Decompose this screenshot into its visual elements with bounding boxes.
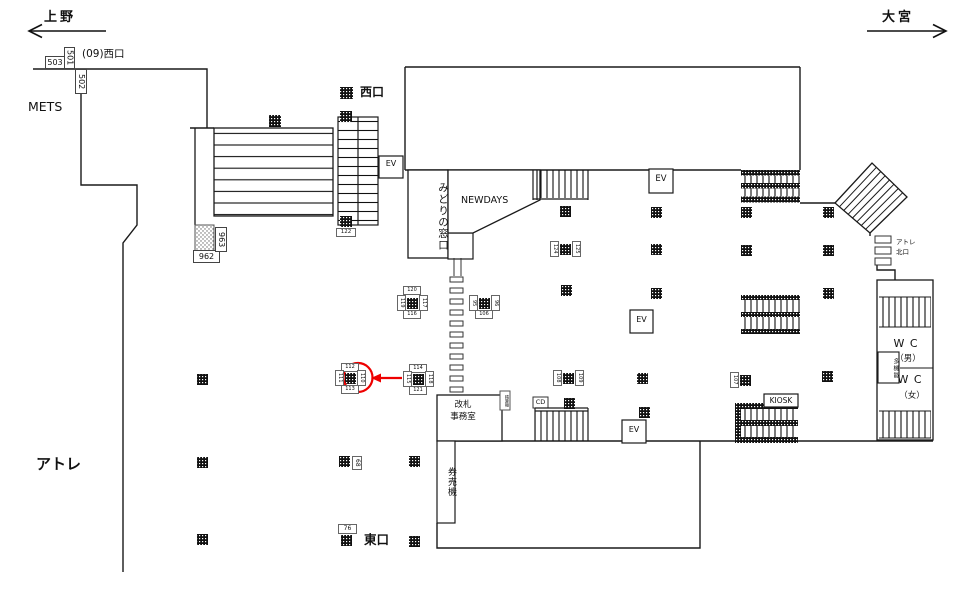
- fare-adjust-label: 精算機: [501, 392, 509, 409]
- bottom-center-stairs: [535, 408, 588, 441]
- pillar: [409, 456, 420, 467]
- west-exit-label: 西口: [360, 86, 384, 99]
- ad-label-c6-right: 109: [575, 370, 584, 386]
- ticket-machines-label: 券売機: [437, 456, 455, 508]
- escalator-middle: [741, 295, 800, 334]
- multi-function-label: 多機能: [879, 354, 898, 382]
- pillar: [341, 535, 352, 546]
- kiosk-stand: [735, 403, 798, 443]
- cd-label: CD: [533, 399, 548, 406]
- elevator-north-label: EV: [649, 175, 673, 184]
- pillar: [822, 371, 833, 382]
- ad-label-963: 963: [215, 227, 227, 252]
- midori-window-label: みどりの窓口: [408, 174, 448, 258]
- pillar: [197, 374, 208, 385]
- ad-label-503: 503: [45, 56, 65, 69]
- pillar: [639, 407, 650, 418]
- diagonal-stairs: [835, 163, 907, 233]
- ad-label-c4-left: 111: [335, 370, 344, 386]
- pillar: [651, 244, 662, 255]
- ad-label-c1-bottom: 116: [403, 310, 421, 319]
- ad-label-68: 68: [352, 456, 362, 470]
- ad-label-c4-right: 110: [357, 370, 366, 386]
- pillar: [340, 216, 352, 227]
- station-floor-map: 上野 大宮 (09)西口 503 501 502 METS 西口 962 963…: [0, 0, 960, 605]
- ad-label-c6-left: 108: [553, 370, 562, 386]
- ad-label-c5-right: 118: [425, 371, 434, 387]
- map-geometry: [0, 0, 960, 605]
- ad-label-c1-right: 117: [419, 295, 428, 311]
- ad-label-502: 502: [75, 69, 87, 94]
- ticket-gates: [450, 258, 463, 392]
- pillar: [479, 298, 490, 309]
- corner-room-box: [448, 233, 473, 259]
- elevator-south-label: EV: [622, 426, 646, 435]
- pillar: [409, 536, 420, 547]
- pillar: [560, 206, 571, 217]
- ad-label-c7-left: 107: [730, 372, 739, 388]
- direction-label-omiya: 大宮: [882, 11, 914, 25]
- direction-arrow-omiya: [867, 25, 946, 38]
- pillar: [651, 207, 662, 218]
- pillar: [345, 373, 356, 384]
- west-exit-stairs: [338, 111, 378, 227]
- pillar: [741, 207, 752, 218]
- pillar: [413, 374, 424, 385]
- elevator-west-label: EV: [379, 160, 403, 169]
- elevator-center-label: EV: [630, 316, 653, 325]
- pillar: [740, 375, 751, 386]
- center-top-stairs: [533, 170, 588, 200]
- ad-label-c2-bottom: 106: [475, 310, 493, 319]
- escalator-upper: [741, 170, 800, 203]
- pillar: [564, 398, 575, 409]
- ad-label-c1-top: 120: [403, 286, 421, 295]
- ad-label-c3-right: 125: [572, 241, 581, 257]
- pillar: [563, 373, 574, 384]
- newdays-label: NEWDAYS: [461, 196, 508, 206]
- pillar: [823, 288, 834, 299]
- ad-label-122: 122: [336, 228, 356, 237]
- wc-women-label: （女）: [890, 392, 934, 401]
- atre-north-gates: [875, 236, 891, 265]
- atre-label: アトレ: [36, 456, 81, 473]
- pillar: [197, 457, 208, 468]
- ad-label-c5-left: 115: [403, 371, 412, 387]
- pillar: [340, 87, 353, 99]
- ad-label-c1-left: 119: [397, 295, 406, 311]
- ad-label-501: 501: [64, 47, 75, 69]
- pillar: [651, 288, 662, 299]
- wc-men-title: W C: [884, 338, 928, 350]
- atre-north-label-1: アトレ: [896, 239, 916, 246]
- ad-label-c2-left: 95: [469, 295, 478, 311]
- gate-office-label: 改札 事務室: [437, 399, 489, 423]
- pillar: [340, 111, 352, 122]
- east-exit-label: 東口: [364, 533, 389, 547]
- west-exit-note: (09)西口: [82, 49, 125, 61]
- pillar: [561, 285, 572, 296]
- ad-label-c2-right: 96: [491, 295, 500, 311]
- pillar: [823, 245, 834, 256]
- direction-label-ueno: 上野: [44, 11, 76, 25]
- ad-label-c5-bottom: 121: [409, 386, 427, 395]
- pillar: [197, 534, 208, 545]
- atre-north-label-2: 北口: [896, 249, 909, 256]
- mets-label: METS: [28, 100, 62, 114]
- pillar: [339, 456, 350, 467]
- pillar: [269, 115, 281, 127]
- kiosk-label: KIOSK: [764, 397, 798, 405]
- pillar: [560, 244, 571, 255]
- ad-label-c3-left: 124: [550, 241, 559, 257]
- ad-label-76: 76: [338, 524, 357, 534]
- pillar: [741, 245, 752, 256]
- pillar: [637, 373, 648, 384]
- pillar: [823, 207, 834, 218]
- direction-arrow-ueno: [29, 25, 106, 38]
- pillar: [407, 298, 418, 309]
- ad-label-c4-bottom: 113: [341, 385, 359, 394]
